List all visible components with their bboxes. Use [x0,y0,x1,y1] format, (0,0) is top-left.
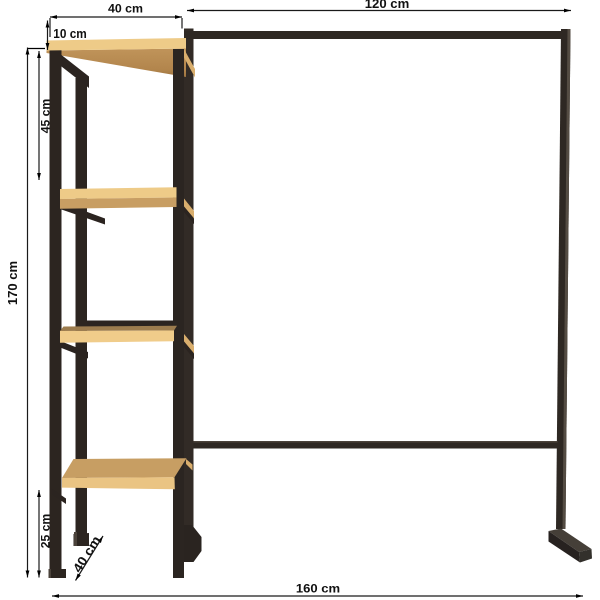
svg-text:45 cm: 45 cm [38,99,52,134]
svg-text:40 cm: 40 cm [108,1,143,15]
svg-text:120 cm: 120 cm [365,0,410,11]
svg-text:170 cm: 170 cm [5,261,20,305]
svg-text:25 cm: 25 cm [38,514,52,549]
svg-text:10 cm: 10 cm [53,26,87,41]
svg-text:160 cm: 160 cm [296,581,340,595]
